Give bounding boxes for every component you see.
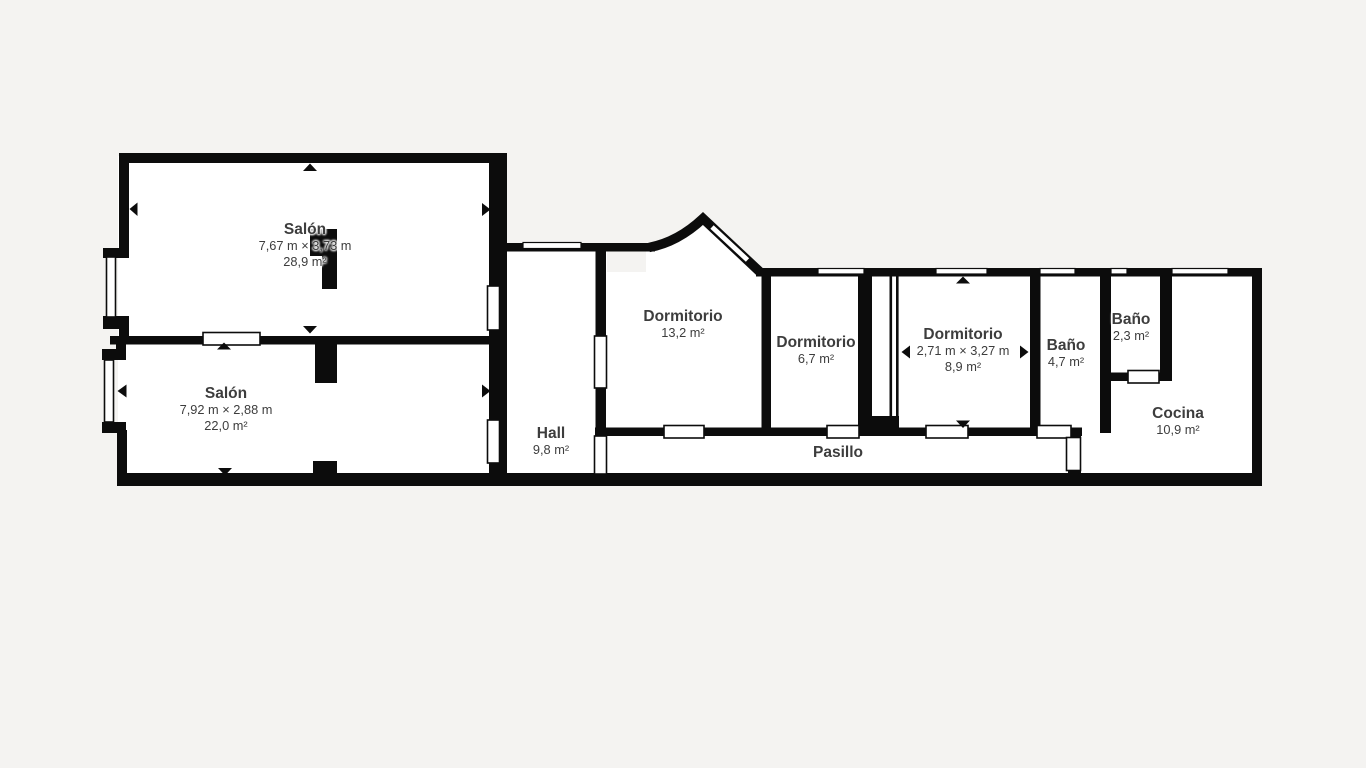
pillar	[315, 343, 337, 383]
wall-segment	[500, 420, 508, 463]
wall-segment	[500, 286, 508, 330]
room-name: Dormitorio	[917, 326, 1010, 343]
window	[936, 269, 987, 275]
room-dimensions: 7,67 m × 3,73 m	[259, 238, 352, 254]
room-dimensions: 7,92 m × 2,88 m	[180, 402, 273, 418]
wall-shaft-line	[896, 276, 899, 436]
room-label-dormitorio-2: Dormitorio 6,7 m²	[776, 334, 855, 367]
room-name: Baño	[1047, 337, 1086, 354]
door-opening	[1067, 438, 1081, 471]
door-opening	[488, 286, 500, 330]
room-label-bano-1: Baño 4,7 m²	[1047, 337, 1086, 370]
wall-segment	[1030, 276, 1041, 436]
room-name: Salón	[259, 221, 352, 238]
door-opening	[488, 420, 500, 463]
wall-segment	[762, 271, 772, 436]
door-opening	[664, 426, 704, 439]
wall-segment	[489, 330, 507, 420]
wall-segment	[858, 276, 872, 436]
room-name: Dormitorio	[776, 334, 855, 351]
window	[818, 269, 864, 275]
window	[1040, 269, 1075, 275]
floor-plan-canvas: Salón 7,67 m × 3,73 m 28,9 m² Salón 7,92…	[0, 0, 1366, 768]
room-name: Salón	[180, 385, 273, 402]
room-name: Baño	[1112, 311, 1151, 328]
room-area: 4,7 m²	[1047, 354, 1086, 370]
wall-segment	[596, 251, 607, 336]
window	[105, 360, 114, 422]
pillar	[313, 461, 337, 475]
wall-segment	[1252, 268, 1262, 486]
room-area: 13,2 m²	[643, 325, 722, 341]
room-area: 9,8 m²	[533, 442, 569, 458]
window	[1111, 269, 1127, 275]
wall-segment	[110, 336, 507, 345]
door-opening	[926, 426, 968, 439]
room-name: Pasillo	[813, 444, 863, 461]
wall-segment	[117, 473, 1262, 486]
wall-shaft-line	[890, 276, 893, 436]
room-name: Cocina	[1152, 405, 1204, 422]
window	[523, 243, 581, 249]
room-label-salon-1: Salón 7,67 m × 3,73 m 28,9 m²	[259, 221, 352, 270]
floor-salon-block	[118, 156, 504, 481]
room-name: Dormitorio	[643, 308, 722, 325]
room-area: 22,0 m²	[180, 418, 273, 434]
wall-segment	[119, 153, 507, 163]
door-opening	[595, 336, 607, 388]
room-label-cocina: Cocina 10,9 m²	[1152, 405, 1204, 438]
wall-segment	[1160, 268, 1172, 380]
room-dimensions: 2,71 m × 3,27 m	[917, 343, 1010, 359]
floor-plan-drawing	[0, 0, 1366, 768]
door-opening	[1037, 426, 1071, 439]
room-label-pasillo: Pasillo	[813, 444, 863, 461]
wall-segment	[117, 430, 127, 480]
room-area: 10,9 m²	[1152, 422, 1204, 438]
wall-segment	[102, 349, 126, 360]
room-name: Hall	[533, 425, 569, 442]
door-opening	[595, 436, 607, 474]
room-area: 8,9 m²	[917, 359, 1010, 375]
wall-segment	[489, 153, 507, 286]
door-opening	[827, 426, 859, 439]
wall-segment	[1100, 276, 1111, 433]
room-label-salon-2: Salón 7,92 m × 2,88 m 22,0 m²	[180, 385, 273, 434]
wall-segment	[119, 153, 129, 256]
room-label-dormitorio-3: Dormitorio 2,71 m × 3,27 m 8,9 m²	[917, 326, 1010, 375]
window	[1172, 269, 1228, 275]
wall-segment	[489, 463, 507, 486]
room-area: 6,7 m²	[776, 351, 855, 367]
window	[107, 257, 116, 317]
window	[203, 333, 260, 346]
room-area: 2,3 m²	[1112, 328, 1151, 344]
room-label-bano-2: Baño 2,3 m²	[1112, 311, 1151, 344]
door-opening	[1128, 371, 1159, 384]
room-label-hall: Hall 9,8 m²	[533, 425, 569, 458]
room-label-dormitorio-1: Dormitorio 13,2 m²	[643, 308, 722, 341]
room-area: 28,9 m²	[259, 254, 352, 270]
